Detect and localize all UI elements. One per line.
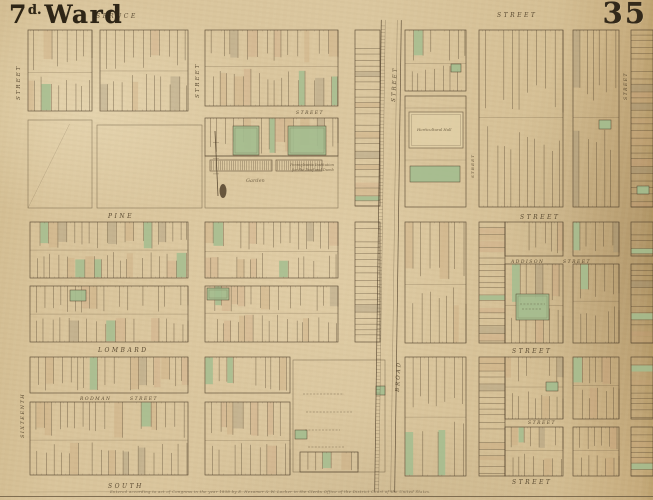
street-label-sixteenth: SIXTEENTH: [20, 393, 26, 438]
open-lot: [28, 120, 92, 208]
map-sheet: 7d.Ward 35 SPRUCESTREETPINESTREETLOMBARD…: [0, 0, 653, 500]
city-block: [505, 222, 563, 256]
street-label-lombard: LOMBARD: [97, 347, 149, 354]
city-block: [573, 30, 619, 207]
city-block: [405, 357, 466, 476]
ward-word: Ward: [45, 0, 124, 29]
map-annotation: Pennsylvania Institution: [289, 163, 335, 167]
city-block: [205, 30, 338, 106]
ward-ordinal-suffix: d.: [28, 3, 42, 18]
street-label-street: STREET: [520, 214, 560, 221]
open-lot: [97, 125, 202, 208]
street-label-street: STREET: [195, 63, 201, 98]
city-block: [631, 427, 653, 476]
city-block: [30, 357, 188, 393]
green-building: [599, 120, 611, 129]
hatched-building: [210, 160, 272, 171]
institution-block: [405, 96, 466, 207]
street-label-pine: PINE: [107, 213, 134, 220]
city-block: [205, 357, 290, 393]
street-label-street: STREET: [16, 65, 22, 100]
city-block: [631, 222, 653, 256]
green-building: [546, 382, 558, 391]
street-label-street: STREET: [391, 67, 399, 103]
plate-number: 35: [603, 0, 647, 30]
map-annotation: Garden: [246, 178, 265, 184]
street-label-street: STREET: [623, 72, 629, 100]
city-block: [573, 264, 619, 343]
city-block: [631, 357, 653, 419]
city-block: [205, 222, 338, 278]
ward-number: 7: [9, 0, 28, 29]
green-building: [295, 430, 307, 439]
street-label-street: STREET: [512, 479, 552, 486]
street-label-street: STREET: [470, 154, 475, 178]
city-block: [30, 402, 188, 475]
city-block: [300, 452, 358, 472]
city-block: [479, 357, 505, 476]
street-label-street: STREET: [296, 110, 324, 116]
city-block: [573, 222, 619, 256]
city-block: [573, 427, 619, 476]
city-block: [30, 222, 188, 278]
street-label-broad: BROAD: [395, 361, 403, 393]
city-block: [30, 286, 188, 342]
street-label-rodman: RODMAN: [79, 396, 111, 402]
green-building: [376, 386, 385, 395]
green-building: [70, 290, 86, 301]
map-annotation: for the Deaf and Dumb: [291, 168, 335, 172]
city-block: [205, 402, 290, 475]
green-building: [410, 166, 460, 182]
open-lot: [293, 360, 385, 472]
green-building: [288, 126, 326, 155]
green-building: [451, 64, 461, 72]
map-canvas: SPRUCESTREETPINESTREETLOMBARDSTREETSOUTH…: [0, 0, 653, 500]
green-building: [516, 294, 549, 320]
map-annotation: Horticultural Hall: [416, 127, 452, 132]
street-label-street: STREET: [563, 259, 591, 265]
city-block: [405, 30, 466, 91]
city-block: [28, 30, 92, 111]
street-label-street: STREET: [512, 348, 552, 355]
city-block: [573, 357, 619, 419]
street-label-addison: ADDISON: [510, 259, 544, 265]
city-block: [479, 30, 563, 207]
green-building: [233, 126, 259, 155]
city-block: [355, 222, 380, 342]
city-block: [631, 264, 653, 343]
green-building: [637, 186, 649, 194]
street-label-street: STREET: [528, 420, 556, 426]
city-block: [479, 222, 505, 343]
city-block: [355, 30, 380, 206]
city-block: [100, 30, 188, 111]
ward-title: 7d.Ward: [9, 0, 123, 29]
street-label-street: STREET: [497, 12, 537, 19]
city-block: [505, 427, 563, 476]
green-building: [207, 288, 229, 300]
street-label-street: STREET: [130, 396, 158, 402]
copyright-credit-line: Entered according to act of Congress in …: [110, 489, 431, 494]
city-block: [631, 30, 653, 207]
flagpole-symbol: [213, 131, 227, 198]
city-block: [405, 222, 466, 343]
